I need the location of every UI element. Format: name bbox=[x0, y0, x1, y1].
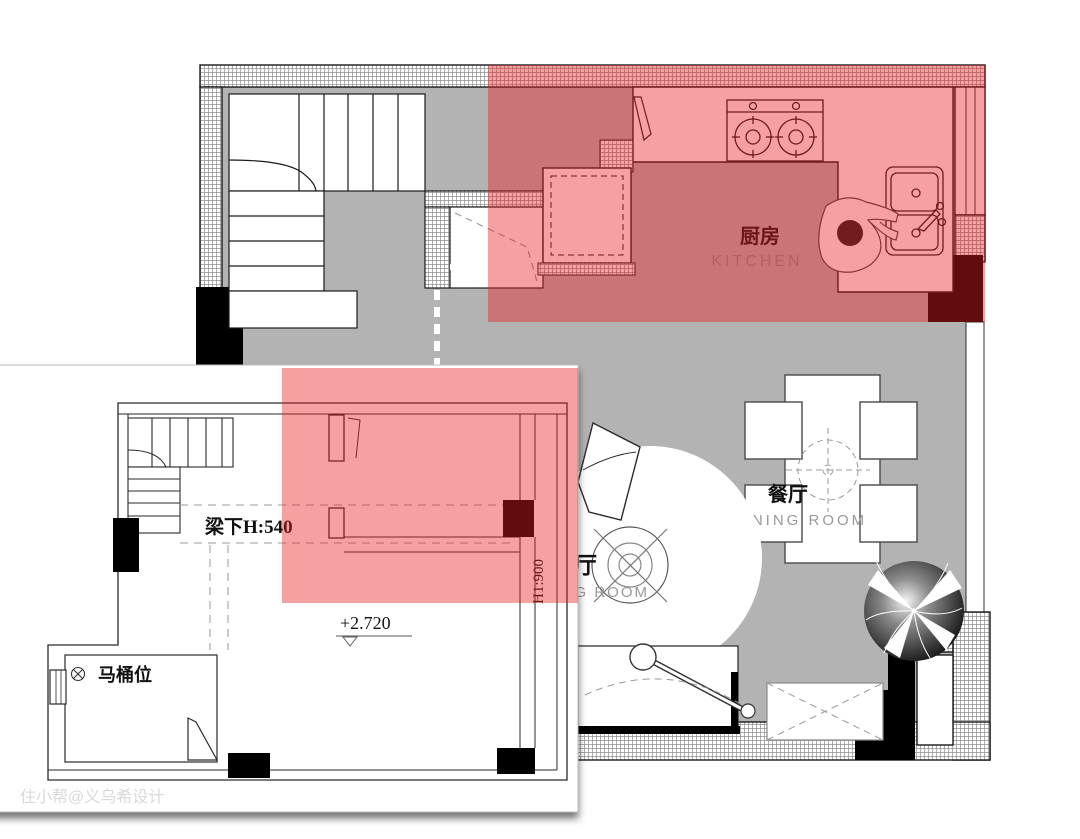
wall-right-lower bbox=[966, 322, 984, 614]
card-column-bottom-mid bbox=[228, 753, 270, 778]
wall-left bbox=[200, 87, 222, 300]
card-column-left bbox=[113, 518, 139, 572]
floor-plan-canvas: 厨房 KITCHEN 餐厅 DINING ROOM bbox=[0, 0, 1080, 839]
watermark-text: 住小帮@义乌希设计 bbox=[20, 788, 164, 806]
dining-label-zh: 餐厅 bbox=[768, 482, 808, 506]
door-niche-br bbox=[917, 655, 953, 745]
floor-plan-screenshot: 厨房 KITCHEN 餐厅 DINING ROOM bbox=[0, 0, 1080, 839]
tv-cabinet bbox=[578, 646, 738, 732]
beam-height-label: 梁下H:540 bbox=[204, 515, 293, 538]
card-column-bottom-right bbox=[497, 748, 535, 774]
dining-chair bbox=[860, 485, 917, 542]
toilet-label: 马桶位 bbox=[98, 664, 152, 685]
tv-cabinet-back bbox=[578, 726, 740, 734]
overlay-card: 马桶位 梁下H:540 +2.720 H1:900 住小帮@义乌希设计 bbox=[0, 365, 578, 812]
floor-level-label: +2.720 bbox=[340, 613, 391, 633]
x-table bbox=[767, 683, 883, 740]
plant bbox=[864, 561, 964, 661]
card-highlight-overlay bbox=[282, 368, 578, 603]
stair-landing-box bbox=[229, 291, 357, 328]
dining-chair bbox=[745, 402, 802, 459]
dining-chair bbox=[860, 402, 917, 459]
kitchen-highlight-overlay bbox=[488, 65, 985, 322]
